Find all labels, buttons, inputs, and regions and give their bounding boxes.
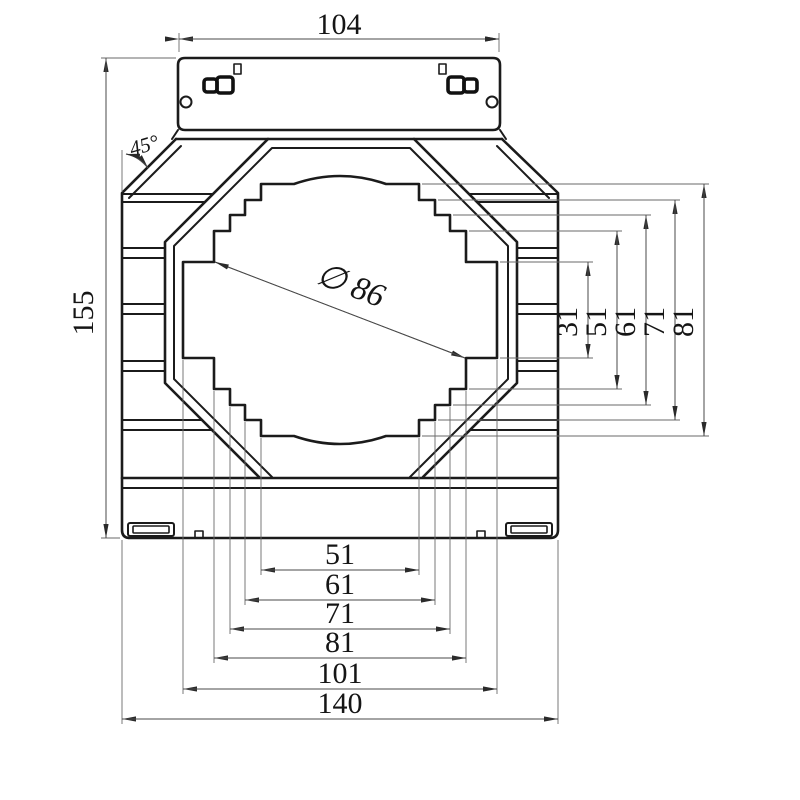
technical-drawing-canvas: 104 155 45° ∅ 86 — [0, 0, 800, 800]
terminal-block-right-large — [448, 77, 464, 93]
dim-bottom-51-label: 51 — [325, 538, 355, 571]
transformer-body — [122, 139, 558, 538]
chamfer-inner-right — [497, 146, 549, 198]
terminal-block-left-small — [204, 79, 217, 92]
current-transformer-dimensional-drawing: 104 155 45° ∅ 86 — [0, 0, 800, 800]
dim-bottom-140-label: 140 — [318, 687, 363, 720]
dimension-top-width: 104 — [179, 8, 499, 52]
core-octagon — [165, 139, 517, 477]
index-square-left — [234, 64, 241, 74]
octagon-outer-left — [165, 139, 268, 477]
index-square-right — [439, 64, 446, 74]
terminal-head — [172, 58, 506, 139]
base-mounting-slots — [128, 523, 552, 538]
octagon-inner — [174, 148, 508, 477]
dimensions-right-vertical: 31 51 61 71 81 — [422, 184, 709, 436]
dim-overall-height-label: 155 — [67, 291, 100, 336]
seal-eyelet-right — [487, 97, 498, 108]
head-flange-left — [172, 130, 178, 139]
terminal-block-left-large — [217, 77, 233, 93]
dim-aperture-diameter-label: ∅ 86 — [311, 256, 390, 315]
dim-right-81-label: 81 — [667, 307, 700, 337]
dim-bottom-101-label: 101 — [318, 657, 363, 690]
dim-chamfer-angle-label: 45° — [127, 130, 162, 161]
dim-top-width-label: 104 — [317, 8, 362, 41]
head-flange-right — [500, 130, 506, 139]
octagon-outer-right — [414, 139, 517, 477]
dim-bottom-81-label: 81 — [325, 626, 355, 659]
dimension-aperture-diameter: ∅ 86 — [215, 256, 465, 358]
seal-eyelet-left — [181, 97, 192, 108]
terminal-block-right-small — [464, 79, 477, 92]
dimensions-bottom-horizontal: 51 61 71 81 101 140 — [122, 360, 558, 724]
